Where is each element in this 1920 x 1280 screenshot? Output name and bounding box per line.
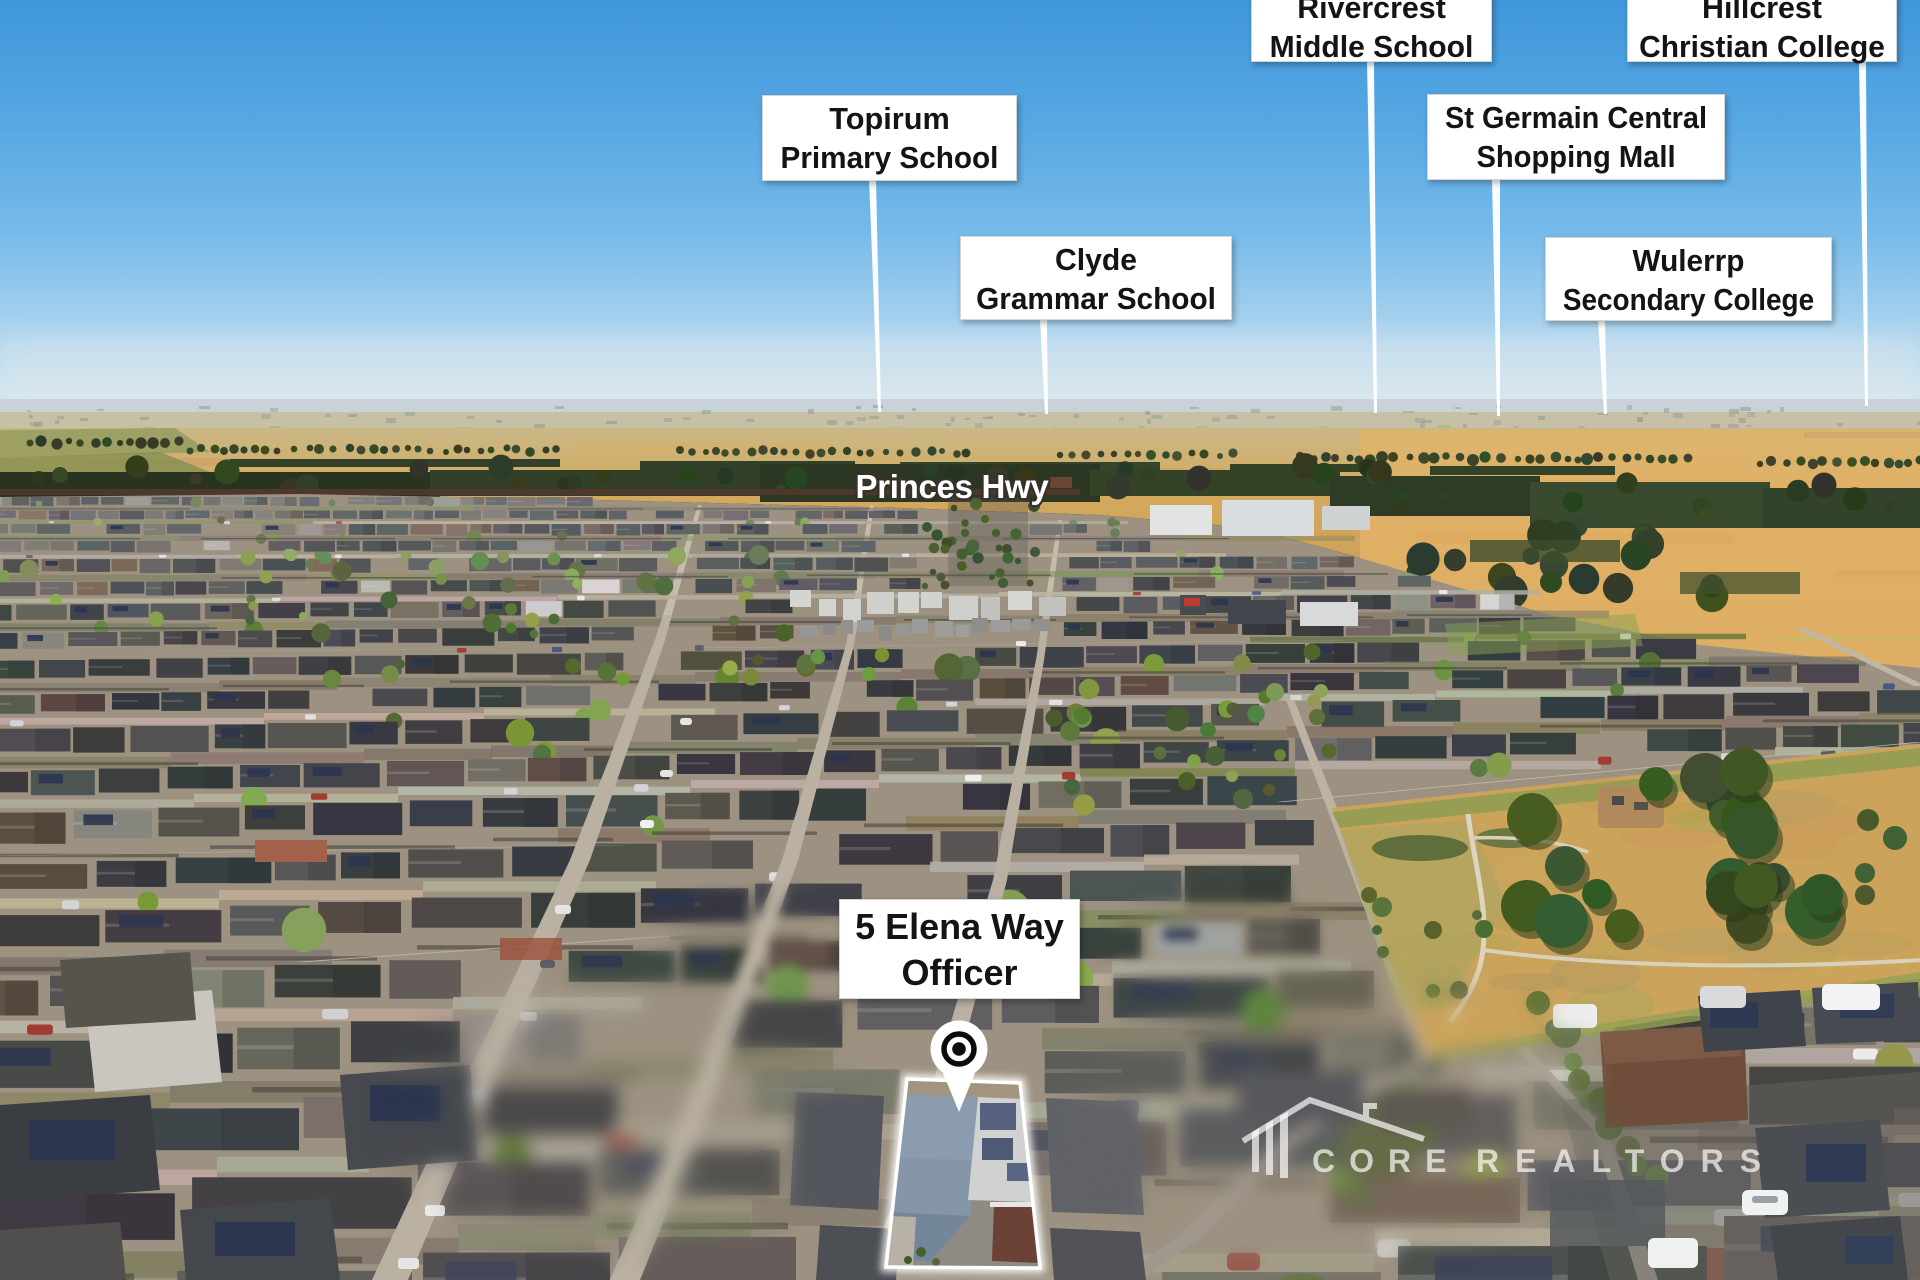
svg-text:REALTORS: REALTORS [1476,1143,1777,1179]
svg-text:CORE: CORE [1312,1143,1460,1179]
